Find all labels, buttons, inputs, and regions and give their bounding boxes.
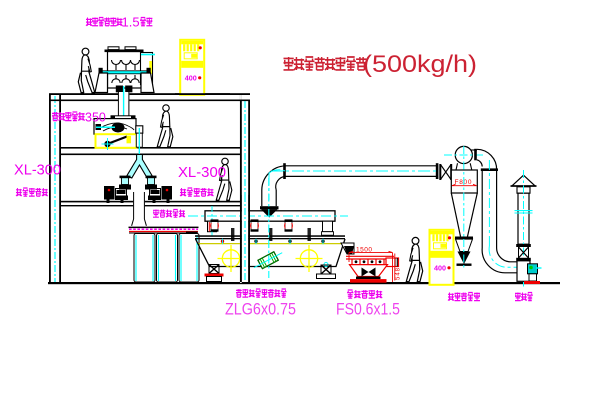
svg-text:1.5: 1.5 [122,15,140,30]
svg-text:ZLG6x0.75: ZLG6x0.75 [225,300,296,319]
svg-text:548: 548 [396,267,402,280]
svg-text:1500: 1500 [356,247,372,254]
svg-text:XL-300: XL-300 [14,162,61,179]
svg-text:F800: F800 [455,179,472,186]
svg-text:XL-300: XL-300 [178,164,226,181]
svg-text:350: 350 [85,111,106,125]
svg-text:(500kg/h): (500kg/h) [363,51,477,78]
svg-text:FS0.6x1.5: FS0.6x1.5 [336,300,400,319]
